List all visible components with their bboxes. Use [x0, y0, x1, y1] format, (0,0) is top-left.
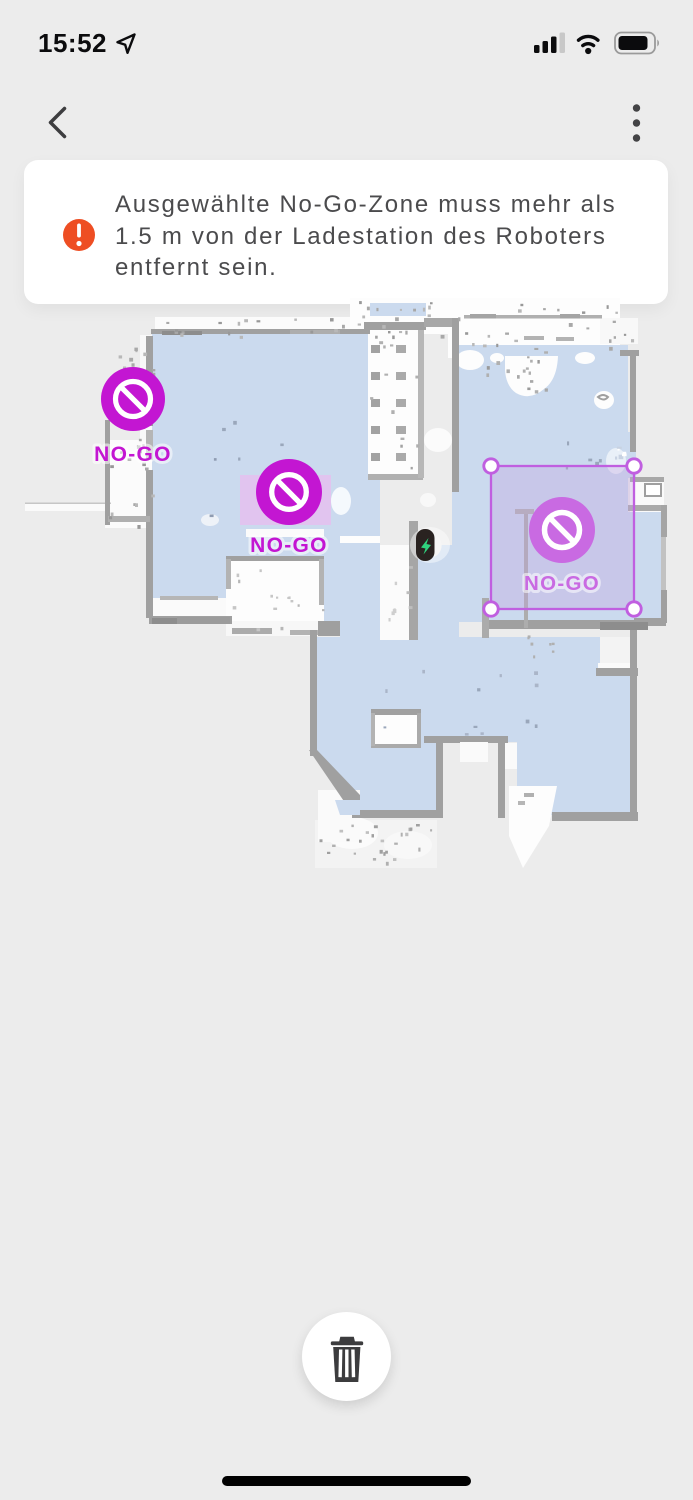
- svg-text:NO-GO: NO-GO: [524, 572, 600, 595]
- svg-text:NO-GO: NO-GO: [94, 443, 172, 466]
- svg-text:NO-GO: NO-GO: [250, 534, 328, 557]
